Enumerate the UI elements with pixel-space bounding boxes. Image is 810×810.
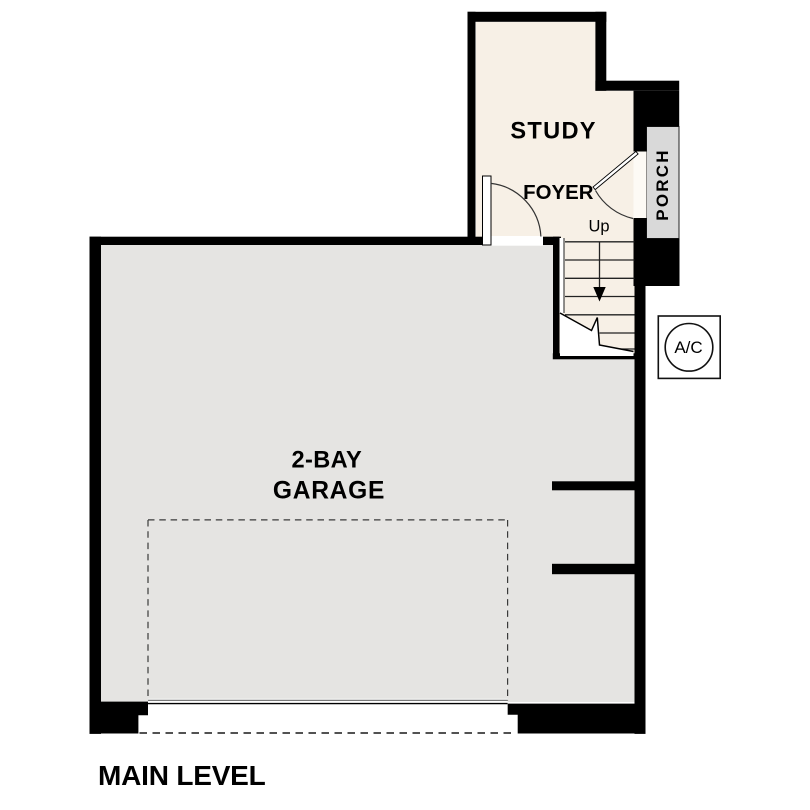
svg-text:MAIN LEVEL: MAIN LEVEL: [98, 760, 266, 791]
svg-text:STUDY: STUDY: [510, 119, 596, 145]
svg-text:PORCH: PORCH: [653, 148, 672, 220]
svg-text:A/C: A/C: [674, 338, 702, 357]
svg-text:GARAGE: GARAGE: [273, 478, 385, 505]
svg-text:FOYER: FOYER: [523, 182, 594, 204]
svg-text:Up: Up: [589, 218, 610, 236]
svg-text:2-BAY: 2-BAY: [291, 447, 362, 473]
